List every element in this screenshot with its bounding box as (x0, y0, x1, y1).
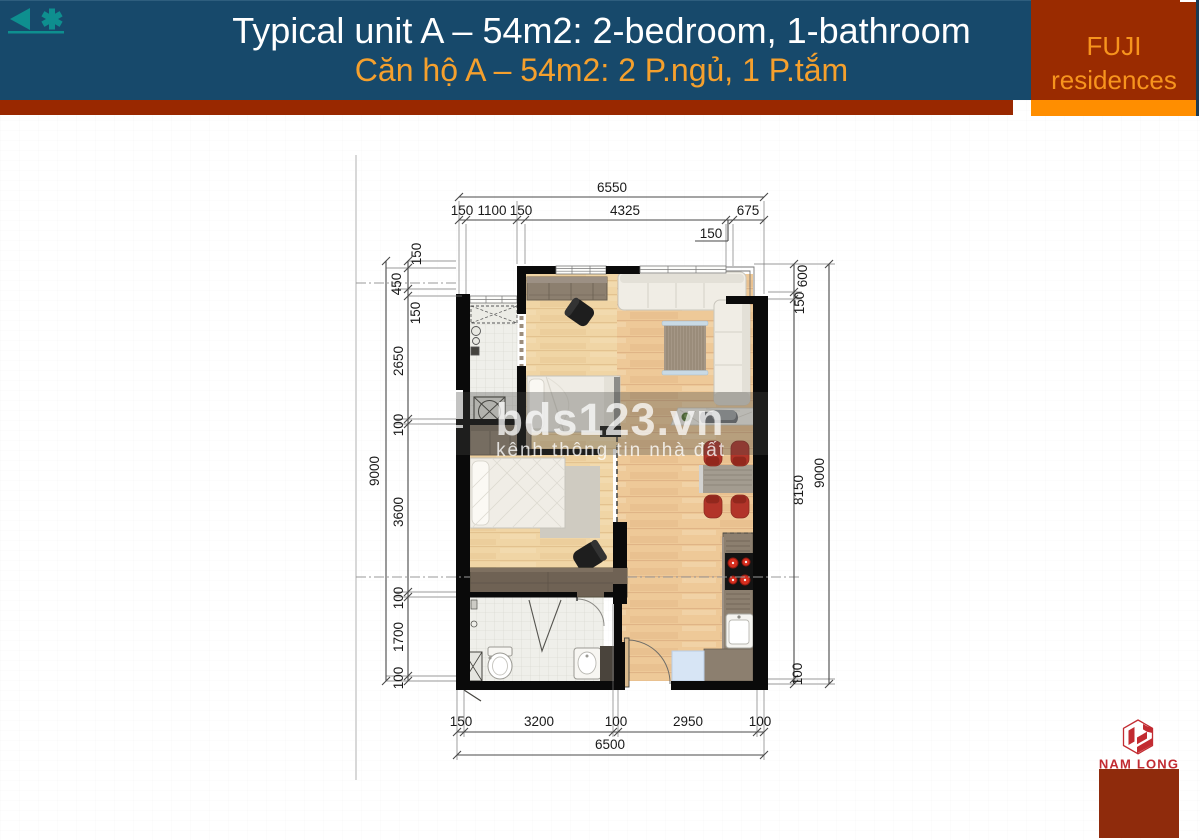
svg-text:3600: 3600 (391, 497, 406, 527)
svg-text:150: 150 (700, 226, 723, 241)
svg-text:100: 100 (790, 663, 805, 686)
svg-text:100: 100 (391, 587, 406, 610)
svg-text:4325: 4325 (610, 203, 640, 218)
svg-text:9000: 9000 (812, 458, 827, 488)
svg-text:3200: 3200 (524, 714, 554, 729)
svg-text:150: 150 (450, 714, 473, 729)
svg-text:150: 150 (510, 203, 533, 218)
svg-text:100: 100 (749, 714, 772, 729)
svg-text:kênh thông tin nhà đất: kênh thông tin nhà đất (496, 440, 726, 461)
svg-text:6550: 6550 (597, 180, 627, 195)
svg-text:100: 100 (391, 667, 406, 690)
svg-text:6500: 6500 (595, 737, 625, 752)
svg-text:150: 150 (792, 292, 807, 315)
svg-text:bds123.vn: bds123.vn (495, 394, 724, 445)
svg-text:8150: 8150 (791, 475, 806, 505)
svg-text:600: 600 (795, 265, 810, 288)
svg-text:1700: 1700 (391, 622, 406, 652)
svg-text:1100: 1100 (477, 203, 506, 218)
svg-text:2650: 2650 (391, 346, 406, 376)
svg-text:675: 675 (737, 203, 760, 218)
svg-text:450: 450 (389, 273, 404, 296)
svg-text:9000: 9000 (367, 456, 382, 486)
svg-text:100: 100 (391, 414, 406, 437)
svg-text:150: 150 (409, 243, 424, 266)
svg-text:150: 150 (408, 302, 423, 325)
svg-text:2950: 2950 (673, 714, 703, 729)
svg-text:150: 150 (451, 203, 474, 218)
svg-text:100: 100 (605, 714, 628, 729)
